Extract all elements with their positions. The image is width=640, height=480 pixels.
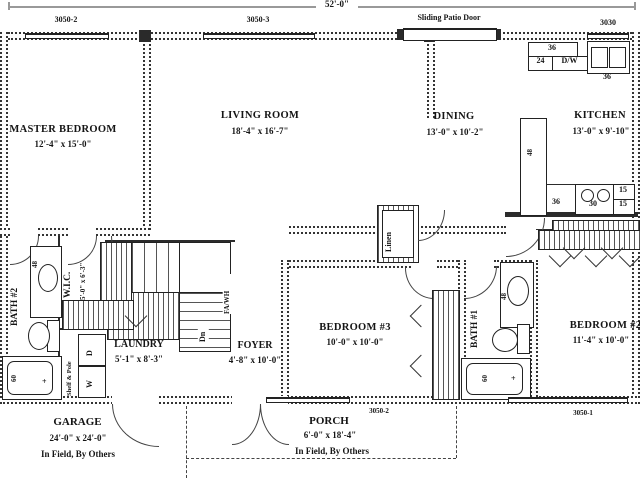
counter-36-label: 36 bbox=[543, 198, 569, 207]
wall-master-living bbox=[143, 40, 151, 230]
wall-hall-north-a bbox=[289, 226, 379, 234]
wall-living-dining bbox=[427, 40, 435, 118]
closet-bifold-marker bbox=[410, 305, 433, 328]
wall-master-bath-c bbox=[96, 228, 150, 236]
bath1-toilet-tank bbox=[517, 324, 530, 354]
window-label-3030: 3030 bbox=[588, 19, 628, 28]
bath1-vanity-48-label: 48 bbox=[501, 284, 509, 300]
room-label-dining: DINING bbox=[424, 111, 484, 123]
dryer-label: D bbox=[86, 342, 95, 356]
room-dims-kitchen: 13'-0" x 9'-10" bbox=[564, 127, 638, 137]
room-dims-living-room: 18'-4" x 16'-7" bbox=[220, 127, 300, 137]
kitchen-cabinet-24-label: 24 bbox=[528, 57, 553, 66]
furnace-water-heater-label: FA/WH bbox=[223, 274, 233, 314]
room-label-porch: PORCH bbox=[303, 415, 355, 427]
room-label-bedroom2: BEDROOM #2 bbox=[558, 320, 640, 332]
bath1-toilet-bowl bbox=[492, 328, 518, 352]
range-30-label: 30 bbox=[579, 200, 607, 209]
washer-label: W bbox=[86, 374, 95, 388]
bath2-sink bbox=[38, 264, 58, 292]
floor-plan: 52'-0" 3050-2 3050-3 Sliding Patio Door … bbox=[0, 0, 640, 480]
room-dims-master-bedroom: 12'-4" x 15'-0" bbox=[12, 140, 114, 150]
kitchen-sink-bowl-right bbox=[609, 47, 626, 68]
room-dims-foyer: 4'-8" x 10'-0" bbox=[223, 356, 287, 366]
window-3030-top bbox=[587, 33, 629, 39]
door-arc-linen bbox=[418, 210, 445, 241]
window-label-3050-3-top: 3050-3 bbox=[228, 16, 288, 25]
wic-hanging-rod-hatch bbox=[100, 242, 132, 304]
room-dims-dining: 13'-0" x 10'-2" bbox=[416, 128, 494, 138]
window-label-3050-2-top: 3050-2 bbox=[36, 16, 96, 25]
wic-shelf-hatch bbox=[62, 300, 134, 330]
window-3050-2-top bbox=[25, 33, 109, 39]
dimension-tick-right bbox=[634, 2, 636, 10]
room-dims-wic: 5'-0" x 6'-3" bbox=[80, 238, 88, 300]
kitchen-sink-bowl-left bbox=[591, 47, 608, 68]
room-dims-garage: 24'-0" x 24'-0" bbox=[28, 434, 128, 444]
room-dims-bedroom3: 10'-0" x 10'-0" bbox=[305, 338, 405, 348]
overall-dimension-label: 52'-0" bbox=[316, 0, 358, 10]
kitchen-cabinet-36-label: 36 bbox=[528, 44, 576, 53]
room-dims-porch: 6'-0" x 18'-4" bbox=[295, 431, 365, 441]
kitchen-sink-label: 36 bbox=[597, 73, 617, 82]
bath2-tub-60-label: 60 bbox=[11, 366, 19, 382]
closet-bifold-marker bbox=[410, 355, 433, 378]
porch-note: In Field, By Others bbox=[284, 447, 380, 457]
bath2-tub-faucet: + bbox=[42, 378, 47, 387]
bedroom2-closet-hatch bbox=[538, 230, 640, 250]
bath1-sink bbox=[507, 276, 529, 306]
room-label-laundry: LAUNDRY bbox=[103, 339, 175, 350]
door-arc-bedroom3 bbox=[405, 268, 434, 299]
linen-label: Linen bbox=[385, 214, 394, 252]
wall-master-bath-a bbox=[0, 228, 10, 236]
room-label-bath2: BATH #2 bbox=[10, 262, 20, 326]
door-arc-front-right bbox=[260, 404, 289, 445]
door-arc-front-left bbox=[232, 404, 261, 445]
dimension-tick-left bbox=[8, 2, 10, 10]
window-label-3050-2-bottom: 3050-2 bbox=[358, 408, 400, 416]
sliding-patio-door-label: Sliding Patio Door bbox=[400, 14, 498, 23]
porch-dashed-bottom bbox=[186, 458, 456, 459]
stair-dn-label: Dn bbox=[198, 326, 209, 342]
door-arc-bath1 bbox=[464, 266, 497, 299]
porch-dashed-left bbox=[186, 406, 187, 478]
wall-junction-post bbox=[139, 30, 151, 42]
wall-left bbox=[0, 32, 8, 398]
room-dims-laundry: 5'-1" x 8'-3" bbox=[100, 355, 178, 365]
bedroom3-closet-hatch bbox=[432, 290, 460, 400]
shelf-and-pole-label: Shelf & Pole bbox=[66, 334, 73, 396]
window-3050-3-top bbox=[203, 33, 315, 39]
window-label-3050-1-bottom: 3050-1 bbox=[560, 410, 606, 418]
room-label-foyer: FOYER bbox=[227, 340, 283, 351]
room-label-kitchen: KITCHEN bbox=[568, 110, 632, 122]
cabinet-15a-label: 15 bbox=[613, 186, 633, 195]
room-label-master-bedroom: MASTER BEDROOM bbox=[2, 124, 124, 136]
bath2-toilet-bowl bbox=[28, 322, 50, 350]
wall-foyer-bedroom3 bbox=[281, 260, 289, 400]
bath1-tub-60-label: 60 bbox=[482, 366, 490, 382]
room-label-bath1: BATH #1 bbox=[470, 286, 480, 348]
garage-note: In Field, By Others bbox=[24, 450, 132, 460]
garage-door-opening bbox=[112, 396, 158, 404]
room-label-wic: W.I.C. bbox=[63, 244, 73, 298]
window-3050-2-bottom bbox=[266, 397, 350, 403]
sliding-patio-door bbox=[403, 28, 497, 41]
room-label-bedroom3: BEDROOM #3 bbox=[300, 322, 410, 334]
pantry-48-label: 48 bbox=[527, 136, 535, 156]
porch-dashed-right bbox=[456, 406, 457, 458]
bath2-vanity-48-label: 48 bbox=[32, 252, 40, 268]
room-label-living-room: LIVING ROOM bbox=[212, 110, 308, 122]
window-3050-1-bottom bbox=[508, 397, 628, 403]
cabinet-15b-label: 15 bbox=[613, 200, 633, 209]
room-label-garage: GARAGE bbox=[40, 416, 115, 428]
room-dims-bedroom2: 11'-4" x 10'-0" bbox=[556, 336, 640, 346]
wall-master-bath-b bbox=[38, 228, 68, 236]
kitchen-dishwasher-label: D/W bbox=[552, 57, 587, 66]
bath1-tub-faucet: + bbox=[511, 375, 516, 384]
